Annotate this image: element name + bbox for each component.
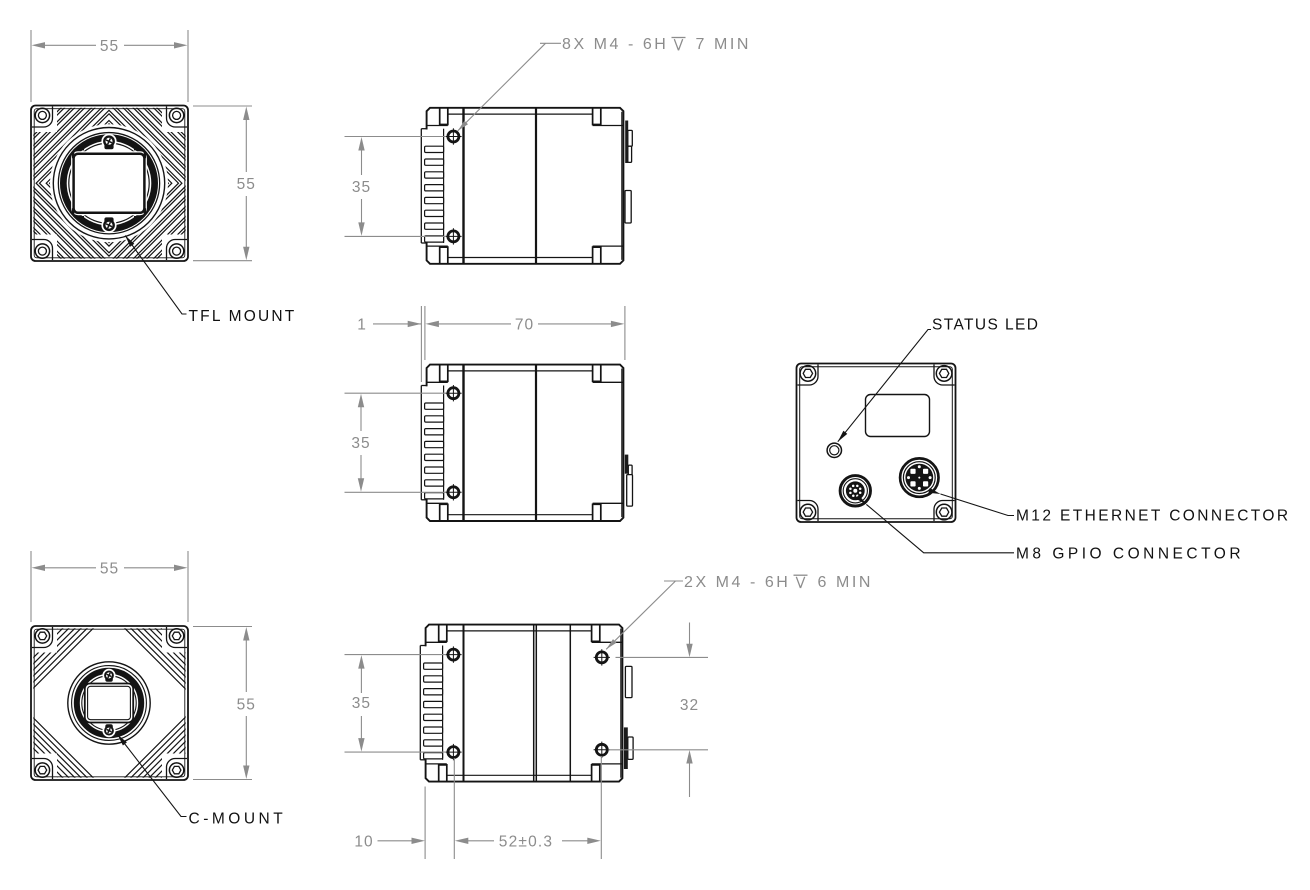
svg-text:70: 70	[515, 317, 534, 334]
svg-text:STATUS LED: STATUS LED	[932, 317, 1039, 334]
svg-text:55: 55	[237, 176, 256, 193]
svg-text:TFL MOUNT: TFL MOUNT	[189, 308, 297, 325]
svg-text:1: 1	[357, 317, 367, 334]
svg-text:C-MOUNT: C-MOUNT	[189, 811, 287, 828]
svg-text:7 MIN: 7 MIN	[696, 36, 751, 53]
svg-text:52±0.3: 52±0.3	[499, 833, 554, 850]
svg-text:2X M4 - 6H: 2X M4 - 6H	[684, 574, 790, 591]
svg-text:32: 32	[680, 697, 699, 714]
svg-text:35: 35	[352, 695, 371, 712]
svg-text:55: 55	[237, 697, 256, 714]
svg-text:8X M4 - 6H: 8X M4 - 6H	[562, 36, 668, 53]
svg-text:55: 55	[100, 38, 119, 55]
svg-text:M12 ETHERNET CONNECTOR: M12 ETHERNET CONNECTOR	[1016, 508, 1290, 525]
svg-text:55: 55	[100, 560, 119, 577]
svg-text:35: 35	[352, 179, 371, 196]
svg-text:6 MIN: 6 MIN	[818, 574, 873, 591]
svg-text:M8 GPIO CONNECTOR: M8 GPIO CONNECTOR	[1016, 546, 1244, 563]
svg-text:35: 35	[351, 435, 370, 452]
svg-text:10: 10	[354, 833, 373, 850]
